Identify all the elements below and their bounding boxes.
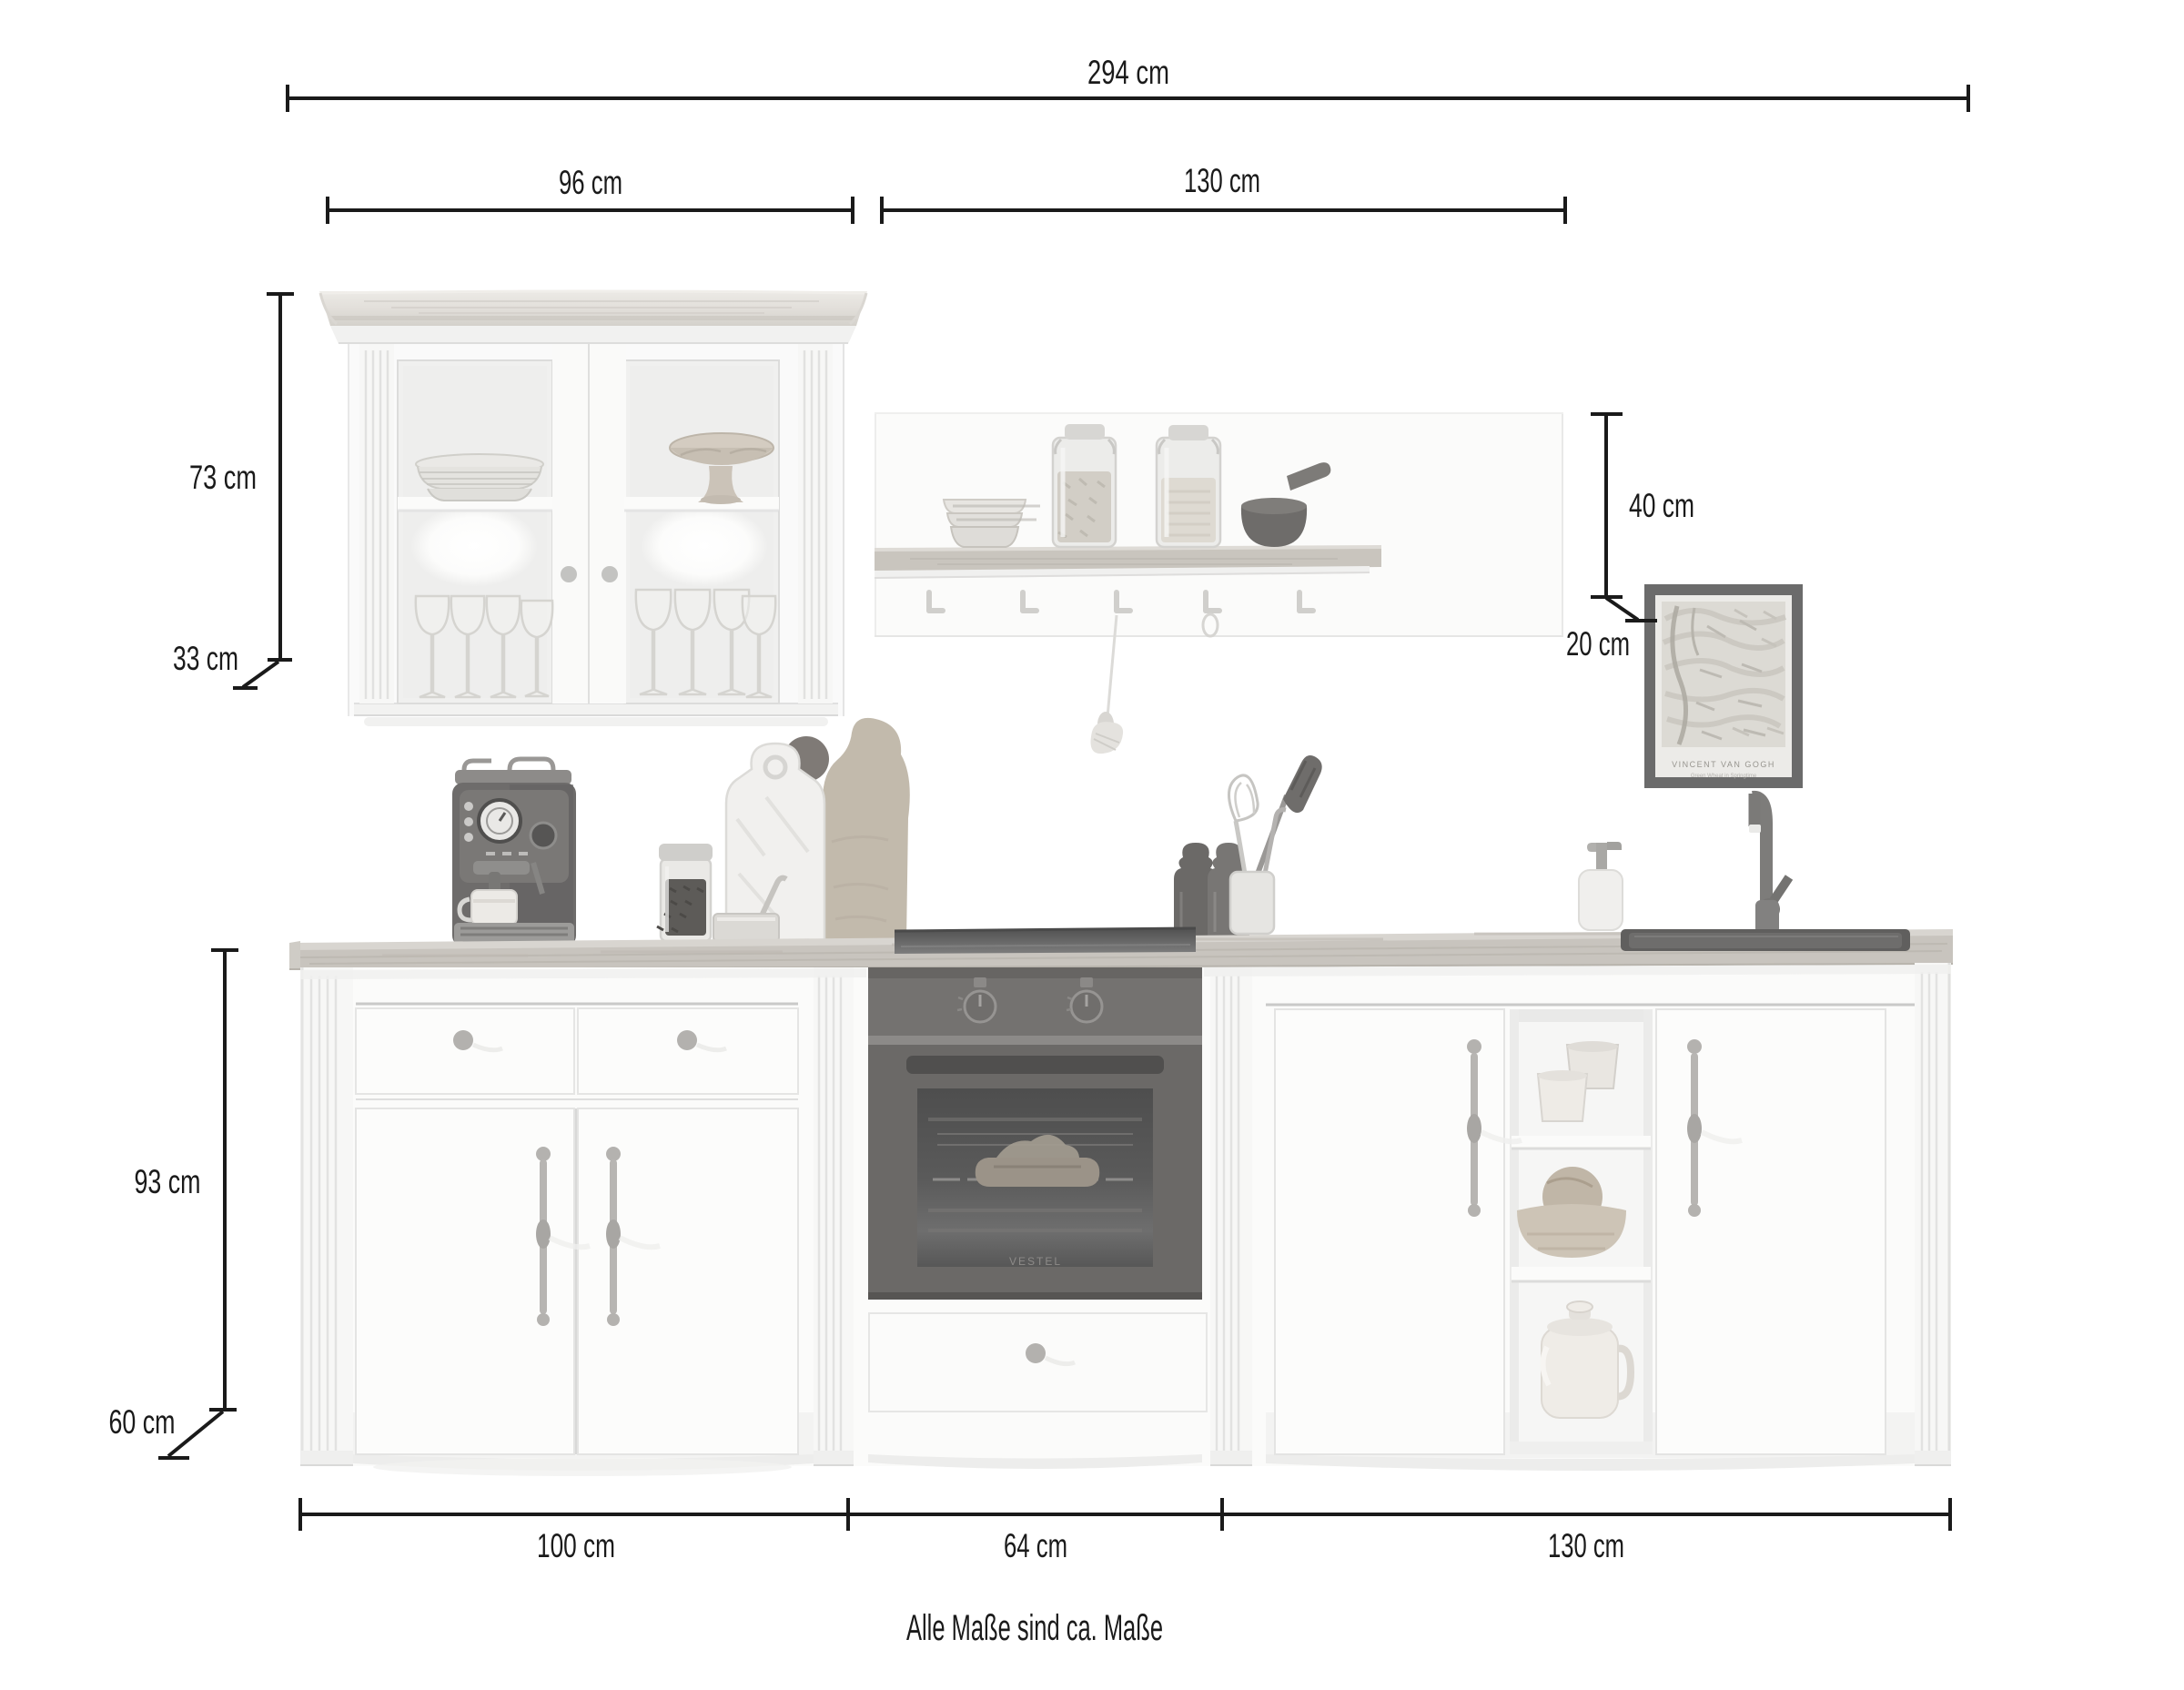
svg-text:Green Wheat in Springtime: Green Wheat in Springtime bbox=[1691, 774, 1757, 779]
svg-text:294 cm: 294 cm bbox=[1087, 54, 1169, 91]
svg-text:130 cm: 130 cm bbox=[1548, 1527, 1624, 1564]
svg-text:20 cm: 20 cm bbox=[1566, 625, 1630, 663]
svg-text:33 cm: 33 cm bbox=[173, 640, 238, 677]
svg-text:60 cm: 60 cm bbox=[109, 1403, 176, 1441]
svg-text:VINCENT VAN GOGH: VINCENT VAN GOGH bbox=[1672, 760, 1775, 769]
svg-text:93 cm: 93 cm bbox=[135, 1163, 201, 1200]
svg-text:73 cm: 73 cm bbox=[189, 459, 257, 496]
svg-text:100 cm: 100 cm bbox=[537, 1527, 615, 1564]
svg-text:Alle Maße sind ca. Maße: Alle Maße sind ca. Maße bbox=[906, 1608, 1163, 1648]
svg-text:40 cm: 40 cm bbox=[1629, 487, 1694, 524]
svg-text:96 cm: 96 cm bbox=[559, 164, 622, 201]
svg-text:64 cm: 64 cm bbox=[1004, 1527, 1067, 1564]
svg-text:130 cm: 130 cm bbox=[1184, 162, 1260, 199]
svg-text:VESTEL: VESTEL bbox=[1009, 1255, 1062, 1268]
